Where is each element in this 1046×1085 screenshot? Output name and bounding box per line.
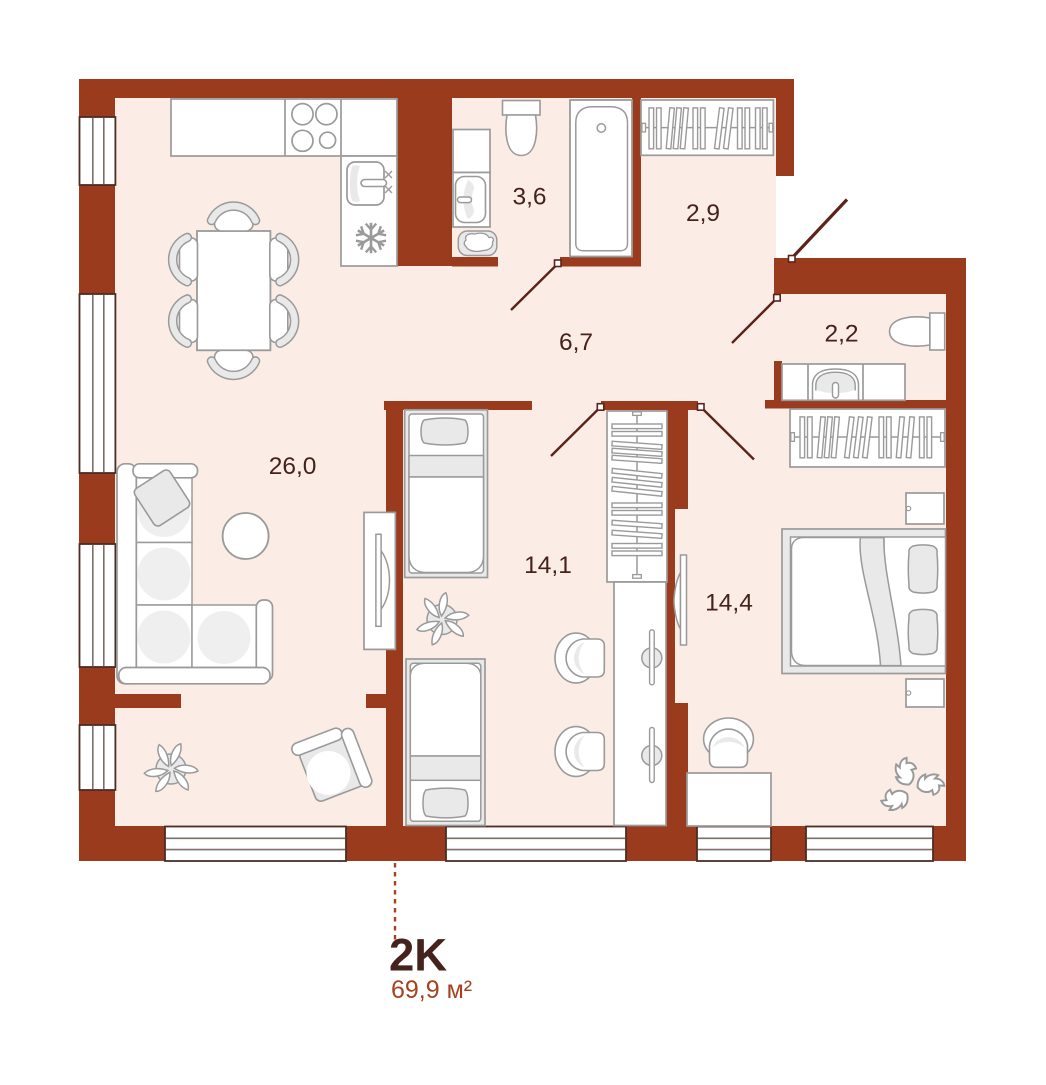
svg-text:26,0: 26,0 <box>269 453 317 480</box>
svg-text:3,6: 3,6 <box>512 184 546 211</box>
svg-text:2,2: 2,2 <box>824 321 858 348</box>
svg-text:2K: 2K <box>389 930 447 981</box>
svg-text:69,9 м²: 69,9 м² <box>391 976 472 1004</box>
svg-text:6,7: 6,7 <box>559 329 593 356</box>
svg-text:2,9: 2,9 <box>686 200 720 227</box>
svg-text:14,1: 14,1 <box>524 552 572 579</box>
svg-text:14,4: 14,4 <box>705 590 753 617</box>
